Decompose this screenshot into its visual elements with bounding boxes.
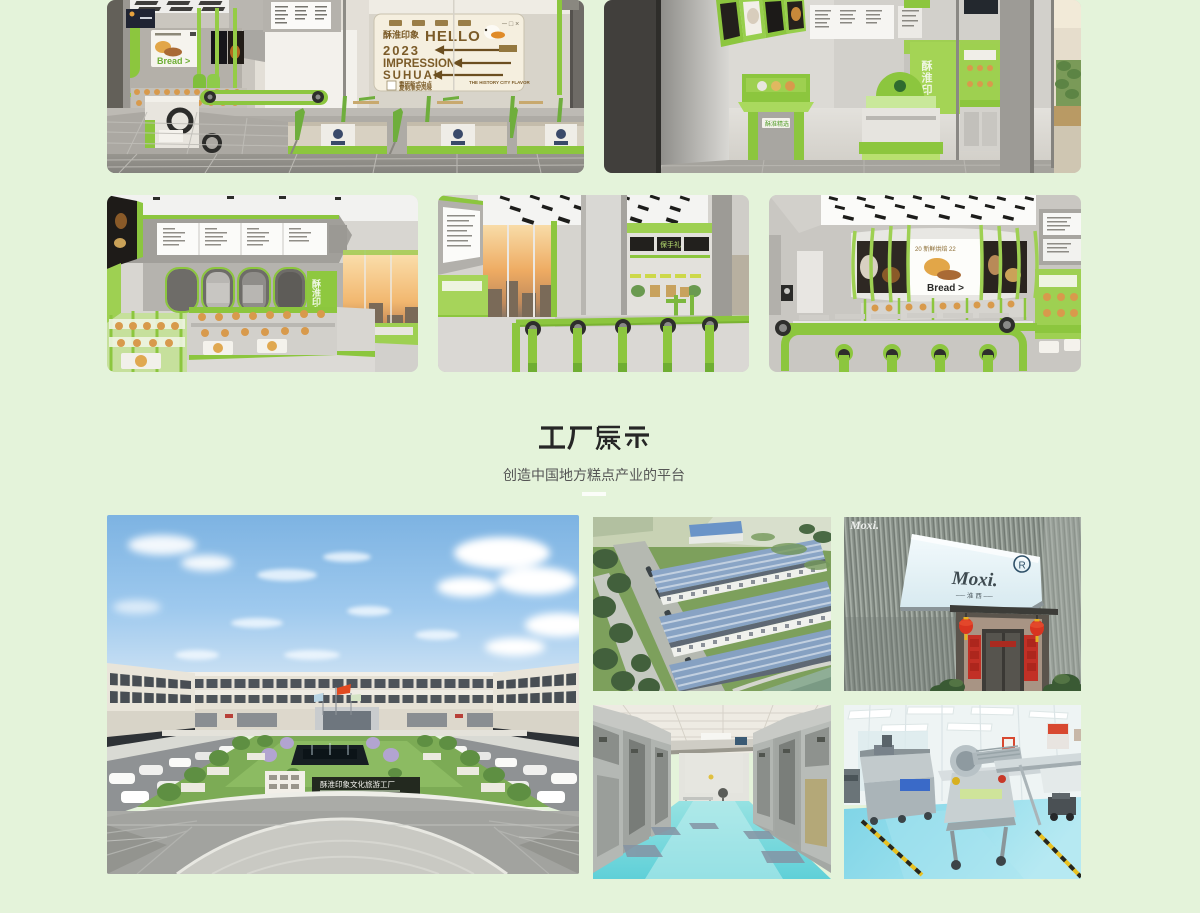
svg-text:20 新鲜烘焙 22: 20 新鲜烘焙 22 bbox=[915, 245, 956, 253]
svg-text:酥淮印象: 酥淮印象 bbox=[383, 29, 419, 40]
svg-text:Moxi.: Moxi. bbox=[950, 568, 998, 591]
svg-text:酥淮印象文化旅游工厂: 酥淮印象文化旅游工厂 bbox=[320, 779, 395, 789]
svg-text:Bread >: Bread > bbox=[157, 56, 190, 66]
svg-text:R: R bbox=[1019, 561, 1026, 572]
svg-text:THE HISTORY CITY FLAVOR: THE HISTORY CITY FLAVOR bbox=[469, 80, 531, 85]
svg-text:保手礼: 保手礼 bbox=[660, 240, 681, 249]
svg-text:Moxi.: Moxi. bbox=[849, 518, 879, 532]
svg-text:HELLO: HELLO bbox=[425, 28, 481, 45]
svg-text:酥淮精选: 酥淮精选 bbox=[765, 120, 789, 128]
svg-text:─ □ ×: ─ □ × bbox=[501, 21, 519, 28]
svg-text:Bread >: Bread > bbox=[927, 283, 964, 294]
svg-text:IMPRESSION: IMPRESSION bbox=[383, 58, 455, 70]
svg-text:SUHUAI: SUHUAI bbox=[383, 70, 439, 82]
svg-text:2023: 2023 bbox=[383, 43, 420, 58]
svg-text:复制淮安风味: 复制淮安风味 bbox=[398, 84, 433, 92]
